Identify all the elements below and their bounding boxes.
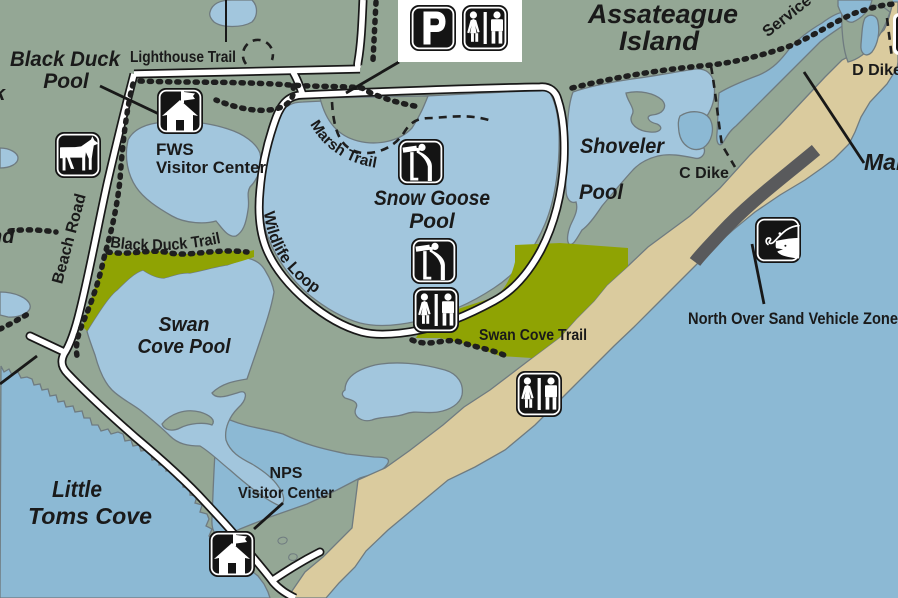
svg-text:FWS: FWS xyxy=(156,140,194,159)
svg-text:Snow Goose: Snow Goose xyxy=(374,187,490,210)
svg-text:C Dike: C Dike xyxy=(679,165,729,182)
svg-text:Black Duck: Black Duck xyxy=(10,48,121,71)
svg-text:Shoveler: Shoveler xyxy=(580,135,666,158)
svg-text:Pool: Pool xyxy=(409,210,456,233)
svg-text:NPS: NPS xyxy=(270,465,303,482)
svg-text:Toms Cove: Toms Cove xyxy=(28,503,152,529)
svg-text:nd: nd xyxy=(0,226,15,248)
svg-text:Lighthouse Trail: Lighthouse Trail xyxy=(130,49,236,66)
svg-text:Swan: Swan xyxy=(159,314,210,336)
svg-text:Visitor Center: Visitor Center xyxy=(156,158,266,177)
svg-text:North Over Sand Vehicle Zone: North Over Sand Vehicle Zone xyxy=(688,309,898,328)
svg-text:Mar: Mar xyxy=(864,149,898,175)
svg-text:Visitor Center: Visitor Center xyxy=(238,485,334,502)
svg-text:k: k xyxy=(0,83,6,105)
svg-text:Swan Cove Trail: Swan Cove Trail xyxy=(479,327,587,344)
svg-text:Cove Pool: Cove Pool xyxy=(138,336,231,358)
svg-text:Little: Little xyxy=(52,476,102,502)
svg-text:Assateague: Assateague xyxy=(587,0,738,29)
svg-text:Pool: Pool xyxy=(579,181,624,204)
svg-text:D Dike: D Dike xyxy=(852,62,898,79)
svg-text:Pool: Pool xyxy=(43,70,90,93)
svg-text:Island: Island xyxy=(619,26,700,56)
